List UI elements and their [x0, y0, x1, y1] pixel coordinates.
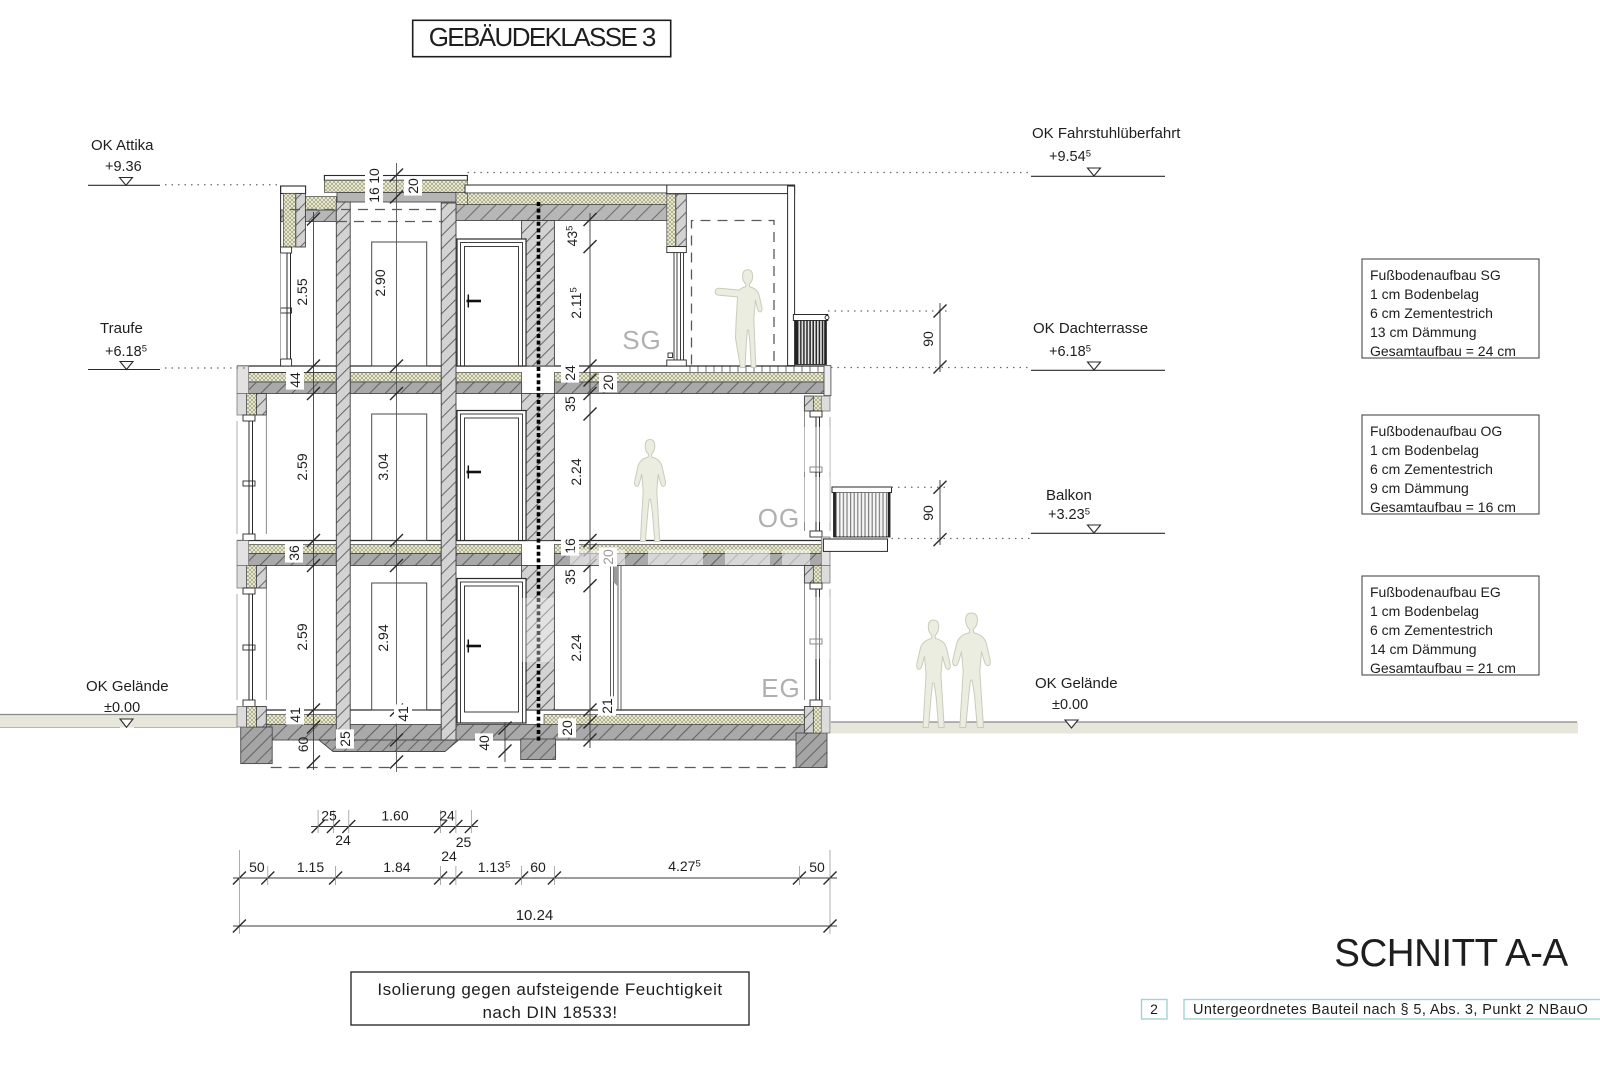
- svg-text:±0.00: ±0.00: [1052, 697, 1088, 713]
- svg-text:SCHNITT A-A: SCHNITT A-A: [1334, 932, 1568, 975]
- svg-text:90: 90: [920, 505, 936, 521]
- svg-text:Fußbodenaufbau OG: Fußbodenaufbau OG: [1370, 423, 1502, 439]
- svg-text:24: 24: [441, 848, 457, 864]
- svg-text:SG: SG: [622, 325, 662, 355]
- svg-text:35: 35: [562, 569, 578, 585]
- svg-text:+9.36: +9.36: [105, 159, 142, 175]
- svg-text:50: 50: [809, 859, 825, 875]
- svg-text:2.94: 2.94: [375, 624, 391, 651]
- svg-text:2.24: 2.24: [568, 458, 584, 485]
- svg-text:6 cm Zementestrich: 6 cm Zementestrich: [1370, 461, 1493, 477]
- svg-text:OK Fahrstuhlüberfahrt: OK Fahrstuhlüberfahrt: [1032, 125, 1181, 142]
- svg-text:2.24: 2.24: [568, 634, 584, 661]
- svg-text:25: 25: [337, 731, 353, 747]
- svg-text:2.59: 2.59: [294, 453, 310, 480]
- svg-text:24: 24: [335, 832, 351, 848]
- svg-text:20: 20: [405, 178, 421, 194]
- svg-text:Balkon: Balkon: [1046, 487, 1092, 504]
- svg-text:+3.235: +3.235: [1048, 507, 1090, 524]
- svg-text:+6.185: +6.185: [105, 344, 147, 361]
- svg-text:25: 25: [321, 808, 337, 824]
- svg-text:44: 44: [287, 372, 303, 388]
- svg-text:1.15: 1.15: [297, 859, 324, 875]
- svg-text:1 cm Bodenbelag: 1 cm Bodenbelag: [1370, 442, 1479, 458]
- svg-text:6 cm Zementestrich: 6 cm Zementestrich: [1370, 622, 1493, 638]
- svg-text:3.04: 3.04: [375, 453, 391, 480]
- svg-text:60: 60: [530, 859, 546, 875]
- svg-text:20: 20: [559, 720, 575, 736]
- svg-text:1.84: 1.84: [383, 859, 410, 875]
- svg-text:9 cm Dämmung: 9 cm Dämmung: [1370, 480, 1469, 496]
- svg-text:10.24: 10.24: [516, 907, 554, 924]
- svg-text:14 cm Dämmung: 14 cm Dämmung: [1370, 641, 1477, 657]
- svg-text:Gesamtaufbau = 24 cm: Gesamtaufbau = 24 cm: [1370, 343, 1516, 359]
- svg-text:50: 50: [249, 859, 265, 875]
- svg-text:Untergeordnetes Bauteil nach §: Untergeordnetes Bauteil nach § 5, Abs. 3…: [1193, 1002, 1588, 1018]
- svg-text:OK Gelände: OK Gelände: [1035, 675, 1118, 692]
- svg-text:36: 36: [286, 545, 302, 561]
- svg-text:+9.545: +9.545: [1049, 149, 1091, 166]
- svg-text:EG: EG: [761, 673, 801, 703]
- svg-text:OK Attika: OK Attika: [91, 137, 154, 154]
- svg-text:Isolierung gegen aufsteigende: Isolierung gegen aufsteigende Feuchtigke…: [377, 980, 722, 999]
- svg-text:2: 2: [1150, 1001, 1158, 1017]
- svg-text:2.59: 2.59: [294, 623, 310, 650]
- svg-text:24: 24: [439, 808, 455, 824]
- svg-text:90: 90: [920, 331, 936, 347]
- svg-text:Gesamtaufbau = 21 cm: Gesamtaufbau = 21 cm: [1370, 660, 1516, 676]
- svg-text:21: 21: [599, 698, 615, 714]
- svg-text:2.55: 2.55: [294, 278, 310, 305]
- svg-text:60: 60: [295, 737, 311, 753]
- svg-text:+6.185: +6.185: [1049, 344, 1091, 361]
- svg-text:40: 40: [476, 735, 492, 751]
- svg-text:13 cm Dämmung: 13 cm Dämmung: [1370, 324, 1477, 340]
- svg-text:nach DIN 18533!: nach DIN 18533!: [482, 1003, 617, 1022]
- svg-text:6 cm Zementestrich: 6 cm Zementestrich: [1370, 305, 1493, 321]
- svg-text:OK Dachterrasse: OK Dachterrasse: [1033, 320, 1148, 337]
- svg-text:OG: OG: [758, 503, 800, 533]
- svg-text:24: 24: [562, 365, 578, 381]
- svg-text:1 cm Bodenbelag: 1 cm Bodenbelag: [1370, 286, 1479, 302]
- svg-text:OK Gelände: OK Gelände: [86, 678, 169, 695]
- svg-text:20: 20: [600, 375, 616, 391]
- svg-text:1 cm Bodenbelag: 1 cm Bodenbelag: [1370, 603, 1479, 619]
- svg-text:Gesamtaufbau = 16 cm: Gesamtaufbau = 16 cm: [1370, 499, 1516, 515]
- svg-text:10: 10: [366, 168, 382, 184]
- svg-text:Fußbodenaufbau SG: Fußbodenaufbau SG: [1370, 267, 1501, 283]
- svg-text:25: 25: [456, 834, 472, 850]
- svg-text:2.90: 2.90: [372, 269, 388, 296]
- svg-text:16: 16: [366, 187, 382, 203]
- svg-text:1.60: 1.60: [381, 808, 408, 824]
- svg-text:Traufe: Traufe: [100, 320, 143, 337]
- svg-text:GEBÄUDEKLASSE 3: GEBÄUDEKLASSE 3: [429, 22, 656, 52]
- svg-text:±0.00: ±0.00: [104, 700, 140, 716]
- svg-text:35: 35: [562, 396, 578, 412]
- svg-text:Fußbodenaufbau EG: Fußbodenaufbau EG: [1370, 584, 1501, 600]
- svg-text:41: 41: [287, 707, 303, 723]
- svg-text:41: 41: [395, 706, 411, 722]
